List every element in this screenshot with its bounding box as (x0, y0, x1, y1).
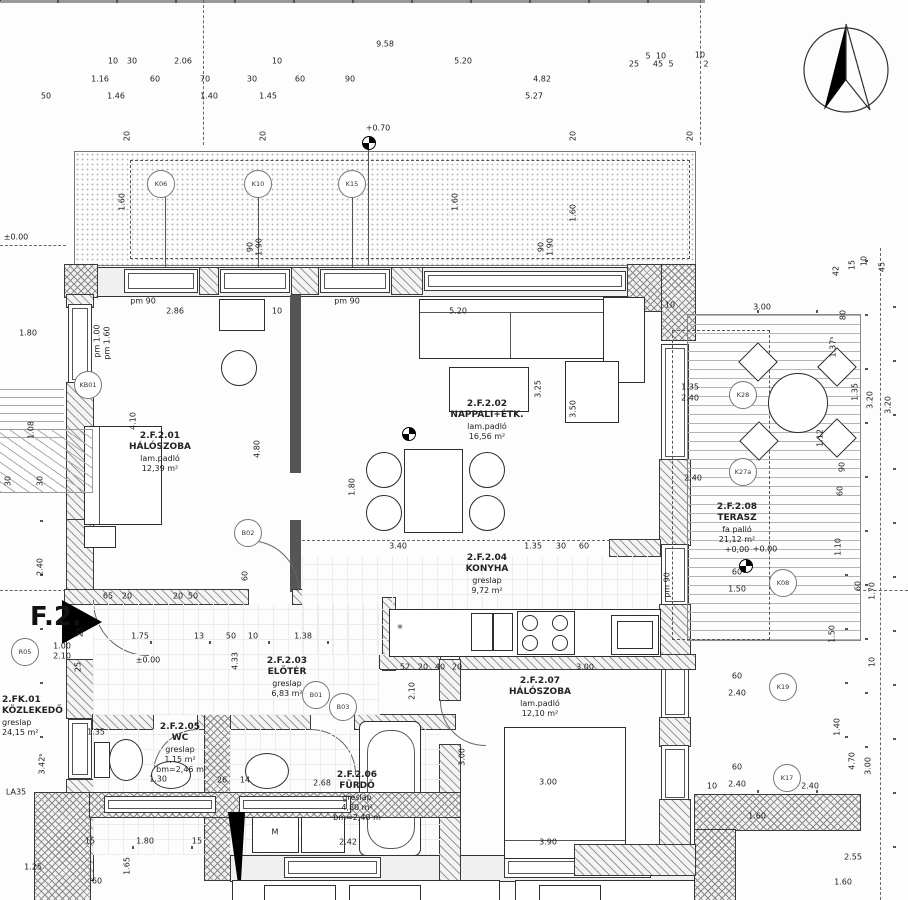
dim-label: 15 (848, 260, 857, 270)
dim-label: 60 (836, 486, 845, 496)
dim-label: 50 (41, 92, 51, 101)
dim-label: 20 (569, 131, 578, 141)
dim-label: 1.60 (569, 204, 578, 222)
dim-label: pm 1.00 (93, 324, 102, 357)
dim-label: 1.12 (816, 429, 825, 447)
dim-label: 1.16 (91, 75, 109, 84)
dim-label: 20 (122, 592, 132, 601)
dim-label: 20 (418, 663, 428, 672)
dim-label: 1.08 (27, 421, 36, 439)
dim-label: 2.40 (801, 782, 819, 791)
dim-label: 1.65 (123, 857, 132, 875)
dim-label: 1.46 (107, 92, 125, 101)
dim-label: 1.75 (131, 632, 149, 641)
floor-plan-canvas: F.2. 9.5810302.06105.20510254551021.1660… (0, 0, 908, 900)
dim-label: 45 (878, 262, 887, 272)
dim-label: 60 (92, 877, 102, 886)
dim-label: 26 (217, 776, 227, 785)
dim-label: 15 (85, 837, 95, 846)
dim-label: 3.40 (389, 542, 407, 551)
dim-label: 30 (247, 75, 257, 84)
dim-label: 2.68 (313, 779, 331, 788)
dim-label: 50 (226, 632, 236, 641)
dim-label: 60 (732, 672, 742, 681)
dim-label: ✳ (397, 623, 404, 632)
dim-label: 5 (668, 60, 673, 69)
dim-label: 2.40 (684, 474, 702, 483)
dim-label: 4.82 (533, 75, 551, 84)
dim-label: LA35 (6, 788, 26, 797)
dim-label: pm 90 (130, 297, 156, 306)
dim-label: 1.25 (24, 863, 42, 872)
dim-label: 60 (854, 581, 863, 591)
dim-label: pm 90 (334, 297, 360, 306)
dim-label: 2.86 (166, 307, 184, 316)
dim-label: 20 (259, 131, 268, 141)
dim-label: 25 (74, 662, 83, 672)
dim-label: 45 (653, 60, 663, 69)
labels-layer: 9.5810302.06105.20510254551021.166070306… (0, 0, 908, 900)
opening-tag: K17 (773, 764, 801, 792)
dim-label: 60 (732, 763, 742, 772)
opening-tag: K06 (147, 170, 175, 198)
dim-label: 30 (4, 476, 13, 486)
dim-label: 1.60 (748, 812, 766, 821)
dim-label: 65 (103, 592, 113, 601)
dim-label: 1.60 (118, 193, 127, 211)
room-label: 2.F.2.03ELŐTÉRgreslap6,83 m² (267, 656, 307, 699)
dim-label: 13 (194, 632, 204, 641)
dim-label: 2.40 (36, 558, 45, 576)
dim-label: 2.40 (728, 780, 746, 789)
dim-label: 2.42 (339, 838, 357, 847)
room-label: 2.F.2.07HÁLÓSZOBAlam.padló12,10 m² (509, 676, 571, 719)
dim-label: 2.40 (728, 689, 746, 698)
opening-tag: K19 (769, 673, 797, 701)
dim-label: 14 (240, 776, 250, 785)
dim-label: 10 (272, 307, 282, 316)
room-label: 2.F.2.08TERASZfa palló21,12 m²+0,00 (717, 502, 757, 555)
dim-label: 5.20 (454, 57, 472, 66)
dim-label: 1.90 (255, 238, 264, 256)
dim-label: 90 (345, 75, 355, 84)
dim-label: 10 (860, 256, 869, 266)
dim-label: 5.27 (525, 92, 543, 101)
dim-label: 10 (868, 657, 877, 667)
dim-label: 20 (123, 131, 132, 141)
dim-label: 1.60 (834, 878, 852, 887)
dim-label: 2.55 (844, 853, 862, 862)
opening-tag: K10 (244, 170, 272, 198)
dim-label: 1.40 (200, 92, 218, 101)
dim-label: 2.06 (174, 57, 192, 66)
dim-label: 50 (188, 592, 198, 601)
dim-label: 30 (127, 57, 137, 66)
opening-tag: K15 (338, 170, 366, 198)
room-label: 2.F.2.06FÜRDŐgreslap4,80 m²bm=2,40 m (333, 770, 381, 823)
dim-label: 60 (150, 75, 160, 84)
dim-label: 90 (537, 242, 546, 252)
dim-label: 3.20 (866, 391, 875, 409)
dim-label: pm 90 (663, 572, 672, 598)
dim-label: 2.40 (681, 394, 699, 403)
dim-label: 15 (192, 837, 202, 846)
dim-label: 42 (832, 266, 841, 276)
dim-label: 1.80 (19, 329, 37, 338)
room-label: 2.FK.01KÖZLEKEDŐgreslap24,15 m² (2, 695, 63, 738)
dim-label: 3.42⁵ (38, 753, 47, 774)
dim-label: 52 (400, 663, 410, 672)
dim-label: +0.70 (366, 124, 391, 133)
room-label: 2.F.2.05WCgreslap1,15 m²bm=2,46 m (156, 722, 204, 775)
dim-label: 1.37⁵ (829, 336, 838, 357)
dim-label: 60 (295, 75, 305, 84)
room-label: 2.F.2.02NAPPALI+ÉTK.lam.padló16,56 m² (450, 399, 523, 442)
dim-label: 3.20 (884, 396, 893, 414)
dim-label: 4.33 (231, 652, 240, 670)
dim-label: 20 (686, 131, 695, 141)
dim-label: 1.80 (136, 837, 154, 846)
room-label: 2.F.2.04KONYHAgreslap9,72 m² (466, 553, 509, 596)
dim-label: 3.90 (539, 838, 557, 847)
dim-label: ±0.00 (4, 233, 29, 242)
dim-label: 1.45 (259, 92, 277, 101)
dim-label: 1.60 (451, 193, 460, 211)
dim-label: M (272, 828, 279, 837)
opening-tag: R05 (11, 638, 39, 666)
dim-label: pm 1.60 (103, 326, 112, 359)
dim-label: 1.40 (833, 718, 842, 736)
dim-label: 3.00 (576, 663, 594, 672)
opening-tag: B02 (234, 519, 262, 547)
opening-tag: KB01 (74, 371, 102, 399)
dim-label: 40 (435, 663, 445, 672)
dim-label: 20 (173, 592, 183, 601)
dim-label: 1.35 (87, 728, 105, 737)
dim-label: 1.35 (851, 383, 860, 401)
dim-label: 30 (36, 476, 45, 486)
dim-label: 1.35 (524, 542, 542, 551)
dim-label: 1.35 (681, 383, 699, 392)
dim-label: 25 (76, 627, 85, 637)
dim-label: 20 (452, 663, 462, 672)
dim-label: 1.30 (149, 775, 167, 784)
dim-label: 1.50 (728, 585, 746, 594)
opening-tag: K28 (729, 381, 757, 409)
opening-tag: K08 (769, 569, 797, 597)
dim-label: 90 (838, 462, 847, 472)
dim-label: 9.58 (376, 40, 394, 49)
dim-label: 5.20 (449, 307, 467, 316)
dim-label: 5 (645, 52, 650, 61)
dim-label: 1.38 (294, 632, 312, 641)
dim-label: 2.10 (53, 652, 71, 661)
dim-label: 10 (665, 301, 675, 310)
dim-label: 10 (272, 57, 282, 66)
dim-label: 1.50 (828, 625, 837, 643)
dim-label: 3.00 (458, 748, 467, 766)
dim-label: 3.50 (569, 400, 578, 418)
opening-tag: B03 (329, 693, 357, 721)
dim-label: 90 (246, 242, 255, 252)
dim-label: 60 (579, 542, 589, 551)
dim-label: 3.00 (864, 757, 873, 775)
dim-label: 70 (200, 75, 210, 84)
dim-label: 1.10 (834, 538, 843, 556)
dim-label: 1.90 (546, 238, 555, 256)
dim-label: 3.25 (534, 380, 543, 398)
dim-label: 1.70 (868, 582, 877, 600)
dim-label: 80 (839, 310, 848, 320)
dim-label: 1.00 (53, 642, 71, 651)
dim-label: 2 (703, 60, 708, 69)
dim-label: 25 (629, 60, 639, 69)
dim-label: ±0.00 (136, 656, 161, 665)
opening-tag: K27a (729, 458, 757, 486)
dim-label: 10 (707, 782, 717, 791)
dim-label: 60 (732, 568, 742, 577)
dim-label: 4.80 (253, 440, 262, 458)
dim-label: 3.00 (753, 303, 771, 312)
dim-label: 60 (241, 571, 250, 581)
dim-label: 3.00 (539, 778, 557, 787)
dim-label: 10 (108, 57, 118, 66)
dim-label: 10 (248, 632, 258, 641)
dim-label: 2.10 (408, 682, 417, 700)
dim-label: 4.70 (848, 752, 857, 770)
dim-label: 30 (556, 542, 566, 551)
dim-label: 10 (695, 51, 705, 60)
room-label: 2.F.2.01HÁLÓSZOBAlam.padló12,39 m² (129, 431, 191, 474)
dim-label: 4.10 (129, 412, 138, 430)
dim-label: 1.80 (348, 478, 357, 496)
